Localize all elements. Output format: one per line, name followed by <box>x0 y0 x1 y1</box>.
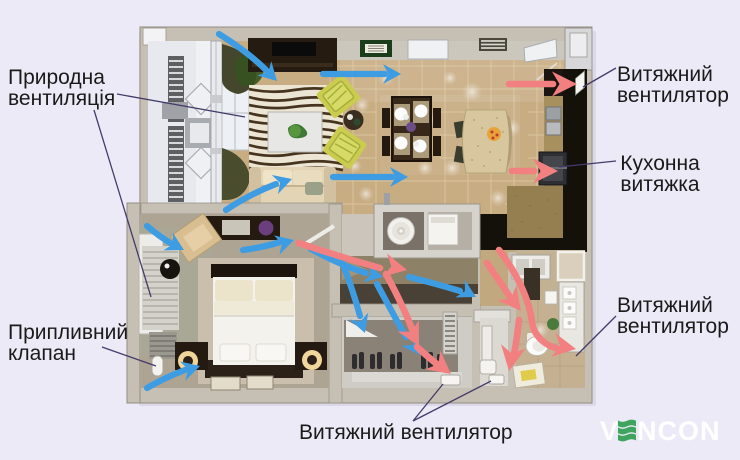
svg-text:Кухонна: Кухонна <box>620 152 700 175</box>
svg-text:V: V <box>600 416 619 446</box>
svg-text:вентилятор: вентилятор <box>617 84 729 107</box>
svg-text:вентилятор: вентилятор <box>617 315 729 338</box>
svg-text:клапан: клапан <box>8 342 76 365</box>
svg-text:Витяжний вентилятор: Витяжний вентилятор <box>299 421 513 444</box>
svg-text:витяжка: витяжка <box>620 173 700 196</box>
svg-text:Природна: Природна <box>8 66 105 89</box>
svg-text:Витяжний: Витяжний <box>617 63 713 86</box>
svg-text:NCON: NCON <box>637 416 721 446</box>
svg-text:Припливний: Припливний <box>8 321 128 344</box>
svg-text:Витяжний: Витяжний <box>617 294 713 317</box>
svg-text:вентиляція: вентиляція <box>8 87 115 110</box>
